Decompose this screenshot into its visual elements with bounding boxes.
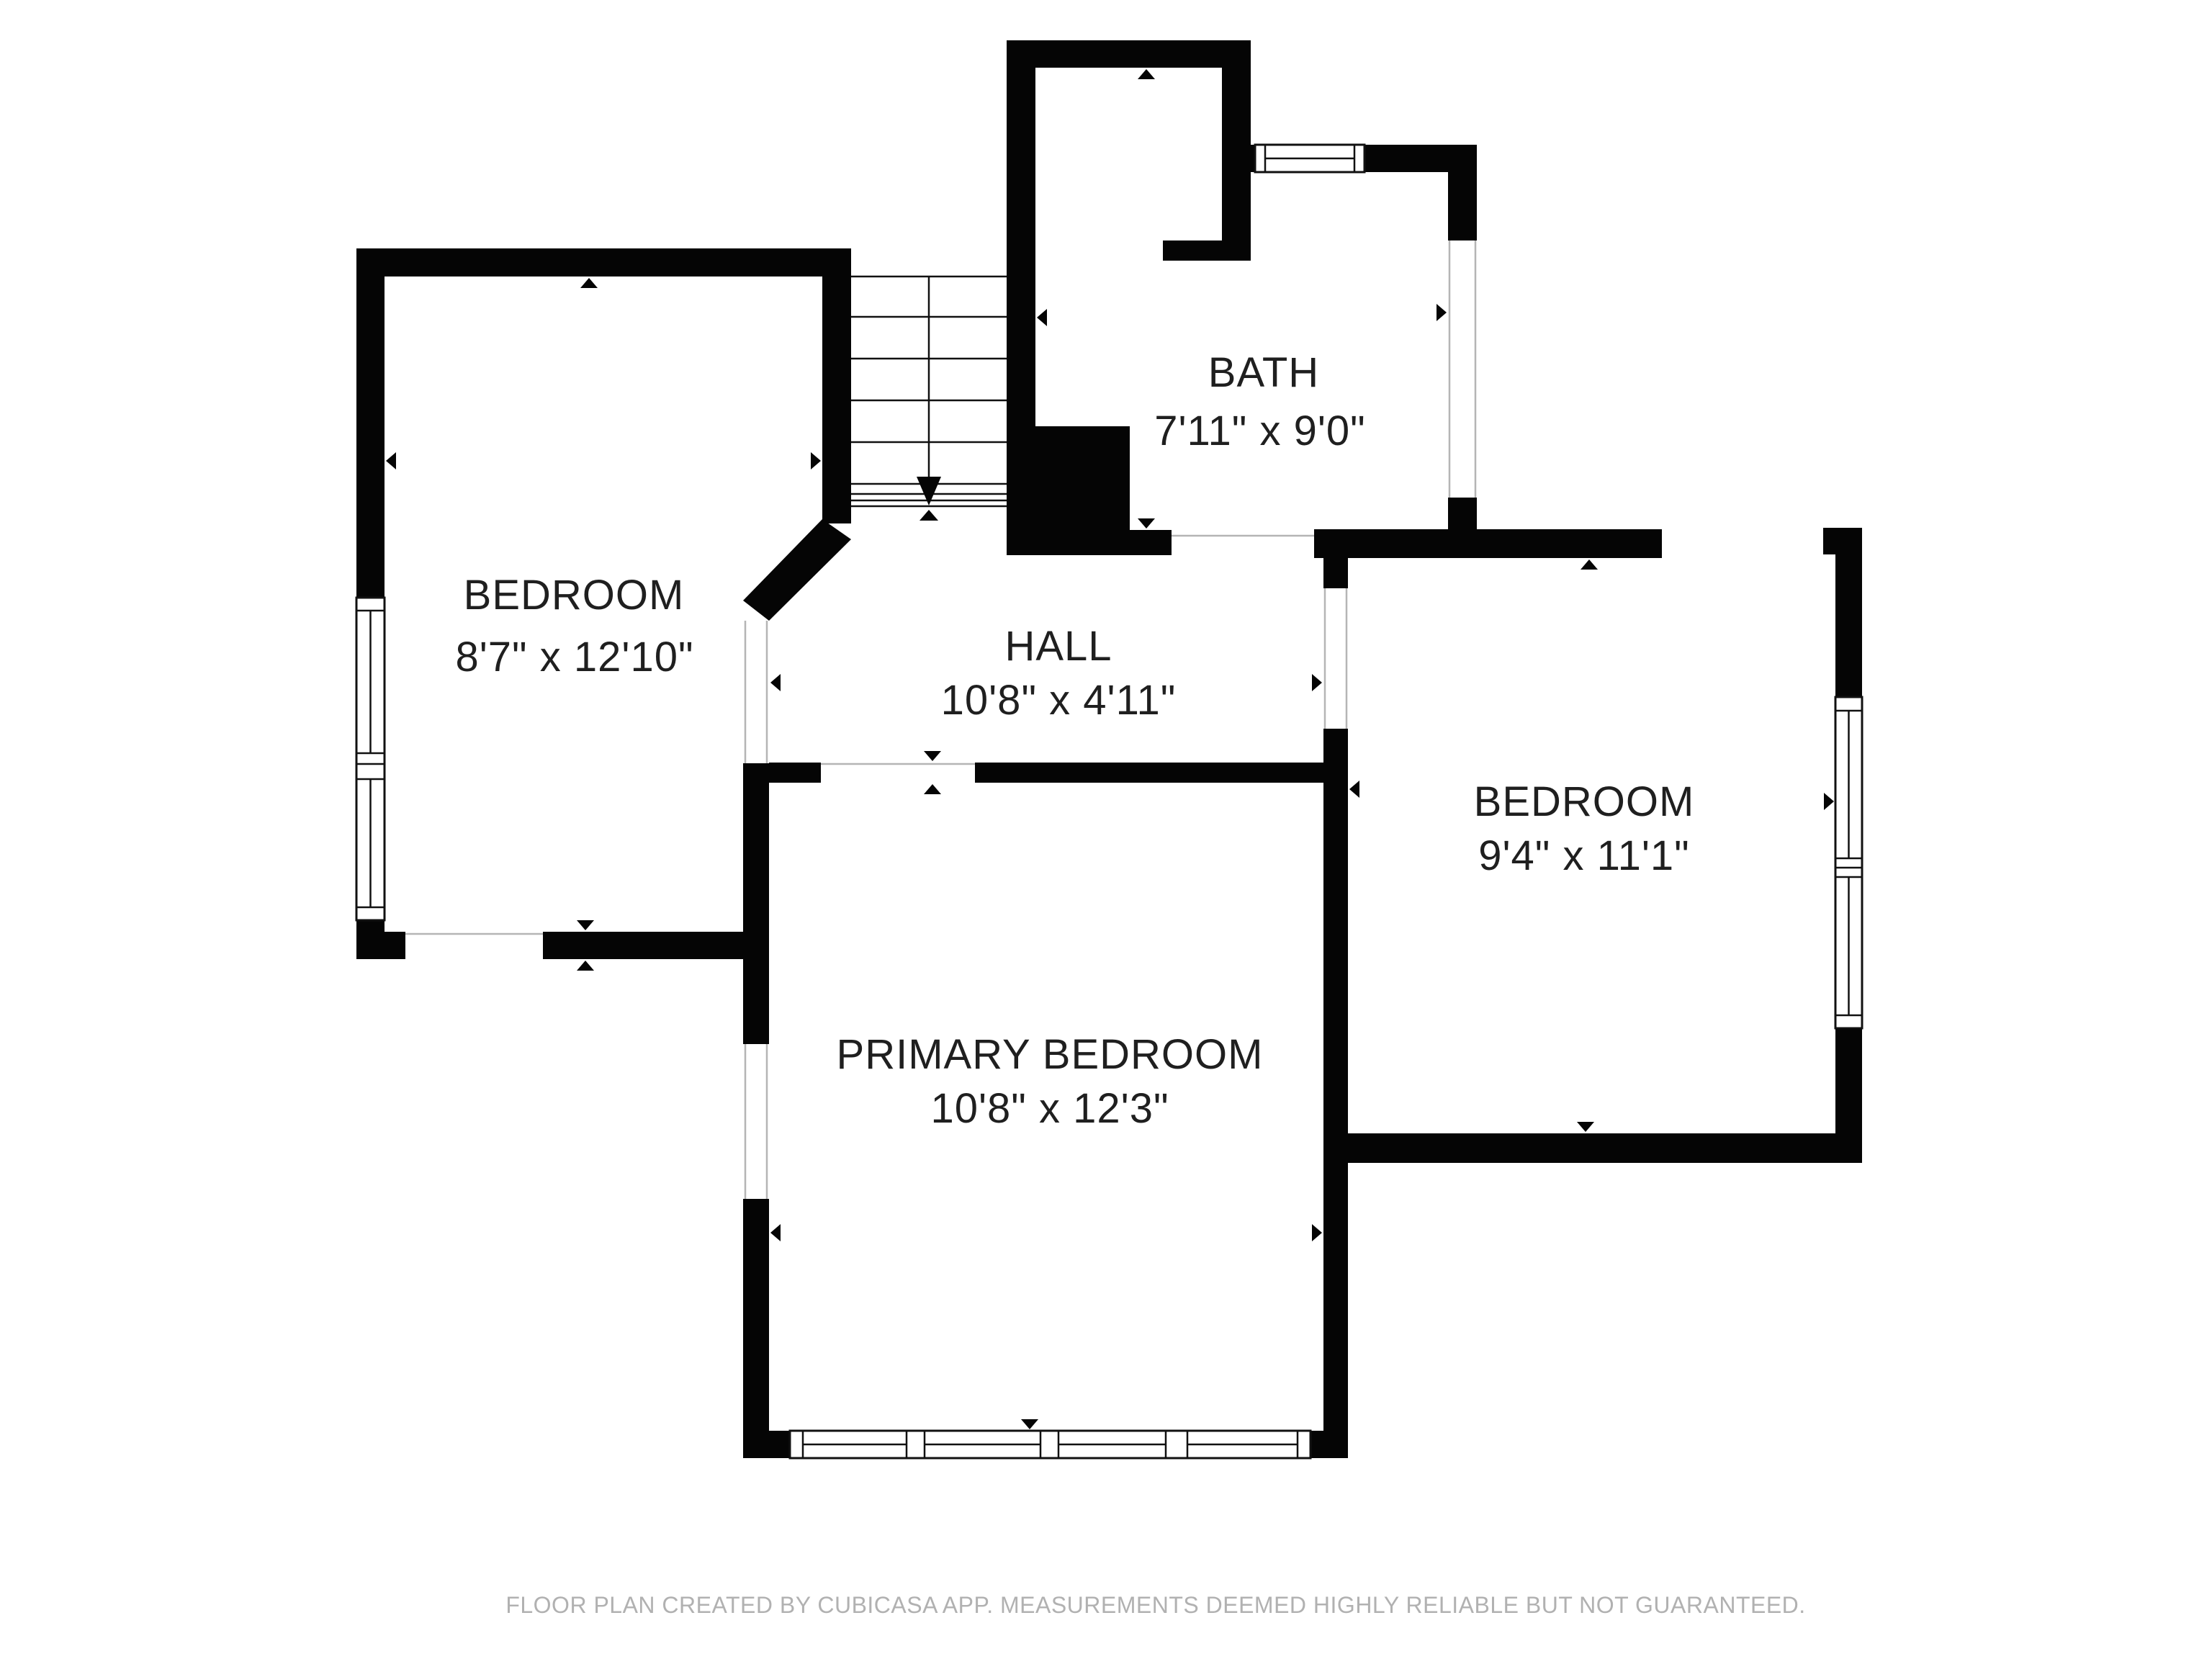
wall-bedroom1-left-upper [356, 248, 385, 598]
wall-bedroom2-right-upper [1835, 528, 1862, 697]
wall-bath-nook-top [1007, 40, 1251, 68]
arrow-up-icon [920, 510, 938, 521]
window-bedroom1-left [356, 598, 385, 920]
room-dims-bedroom1: 8'7" x 12'10" [455, 634, 693, 680]
arrow-left-icon [386, 452, 396, 469]
wall-primary-bottom-left [743, 1431, 790, 1458]
door-hall-bedroom2 [1325, 588, 1346, 729]
arrow-up-icon [580, 278, 598, 288]
walls [356, 40, 1862, 1458]
wall-bath-right-upper [1448, 172, 1477, 240]
wall-bath-nook-right [1222, 68, 1251, 240]
arrow-up-icon [924, 784, 941, 794]
opening-primary-left [745, 1044, 767, 1199]
opening-bath-right [1449, 240, 1475, 498]
wall-bath-step [1163, 240, 1251, 261]
floor-plan-drawing: BEDROOM 8'7" x 12'10" BATH 7'11" x 9'0" … [0, 0, 2212, 1659]
wall-bedroom2-bottom [1323, 1133, 1862, 1163]
wall-stair-closet-block [1035, 426, 1130, 530]
arrow-up-icon [577, 961, 594, 971]
wall-bath-top-right [1364, 145, 1477, 172]
wall-bedroom1-bottom-right [543, 932, 769, 959]
wall-bedroom1-bottom-left [356, 932, 405, 959]
wall-hall-bottom-right [975, 763, 1323, 783]
window-bedroom2-right [1835, 697, 1862, 1028]
arrow-right-icon [1437, 304, 1447, 321]
room-label-primary: PRIMARY BEDROOM [837, 1031, 1264, 1078]
arrow-up-icon [1581, 559, 1598, 570]
room-label-hall: HALL [1004, 623, 1112, 670]
wall-bedroom1-top [356, 248, 851, 276]
arrow-up-icon [1138, 69, 1155, 79]
arrow-left-icon [1037, 309, 1047, 326]
room-dims-bedroom2: 9'4" x 11'1" [1478, 832, 1690, 879]
wall-primary-left-lower [743, 1199, 769, 1458]
arrow-left-icon [770, 674, 781, 691]
door-bedroom1-hall [745, 621, 767, 763]
room-dims-bath: 7'11" x 9'0" [1154, 408, 1366, 454]
wall-hall-top-strip [1035, 530, 1172, 555]
arrow-left-icon [770, 1224, 781, 1241]
arrow-right-icon [811, 452, 821, 469]
room-dims-primary: 10'8" x 12'3" [930, 1085, 1169, 1132]
wall-stair-right [1007, 40, 1035, 555]
arrow-right-icon [1824, 793, 1834, 810]
wall-diagonal [743, 519, 851, 621]
wall-primary-bottom-right [1310, 1431, 1348, 1458]
window-bath-top [1255, 145, 1364, 172]
arrow-down-icon [1577, 1122, 1594, 1132]
arrow-down-icon [1138, 518, 1155, 529]
arrow-down-icon [1021, 1419, 1038, 1429]
wall-bedroom2-top [1314, 529, 1662, 558]
wall-stair-left [822, 248, 851, 523]
arrow-left-icon [1349, 781, 1359, 798]
room-label-bedroom2: BEDROOM [1474, 778, 1695, 825]
arrow-down-icon [577, 920, 594, 930]
stairs [851, 276, 1007, 506]
wall-hall-primary-right [1323, 729, 1348, 1458]
wall-hall-left-upper [743, 763, 769, 1044]
room-dims-hall: 10'8" x 4'11" [941, 677, 1177, 724]
wall-hall-bottom-left [769, 763, 821, 783]
room-label-bath: BATH [1208, 349, 1319, 396]
window-primary-bottom [790, 1431, 1310, 1458]
room-label-bedroom1: BEDROOM [464, 572, 685, 619]
floor-plan-page: BEDROOM 8'7" x 12'10" BATH 7'11" x 9'0" … [0, 0, 2212, 1659]
wall-hall-right-stub [1323, 556, 1348, 588]
arrow-right-icon [1312, 1224, 1322, 1241]
arrow-down-icon [924, 751, 941, 761]
footer-disclaimer: FLOOR PLAN CREATED BY CUBICASA APP. MEAS… [505, 1592, 1805, 1618]
arrow-right-icon [1312, 674, 1322, 691]
